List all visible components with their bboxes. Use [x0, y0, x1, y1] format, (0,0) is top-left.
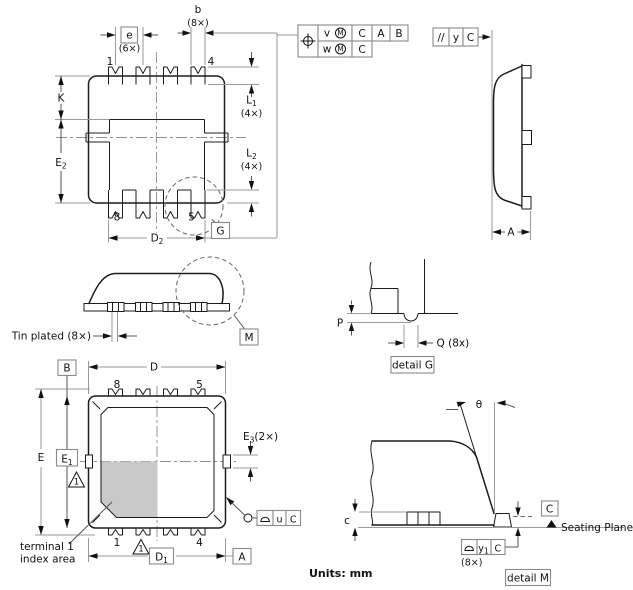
u-frame-tolerance: u: [276, 515, 282, 526]
detail-m-title: detail M: [507, 573, 549, 585]
pin-number-4: 4: [196, 537, 203, 549]
k-dim-label: K: [58, 93, 66, 105]
note-triangle-left-label: 1: [74, 478, 79, 488]
e-dim-label: e: [126, 30, 132, 42]
side-terminal-bottom: [522, 197, 531, 210]
e3-extension-lines: [233, 455, 258, 468]
u-frame-symbol-cell: [257, 511, 273, 526]
leader-balloon-icon: [244, 514, 252, 522]
side-view: A: [492, 30, 532, 240]
l2-dim-label: L2: [246, 148, 257, 162]
b-dim-count: (8×): [187, 18, 208, 29]
y1-frame-count: (8×): [461, 558, 482, 569]
c-dim-label: c: [344, 515, 350, 527]
row1-tolerance: v: [324, 28, 330, 40]
terminal1-index-label-line2: index area: [20, 554, 75, 566]
y1-frame-datum: C: [494, 544, 501, 555]
tin-plated-label: Tin plated (8×): [11, 331, 91, 343]
detail-m-terminals: [407, 512, 440, 525]
row2-datum1: C: [358, 44, 365, 56]
y1-frame-symbol-cell: [462, 540, 478, 555]
left-side-tab: [86, 455, 93, 468]
bottom-view: D B E E1 1 E3(2×) u C: [20, 360, 301, 566]
detail-g-title: detail G: [392, 360, 433, 372]
pin-number-1: 1: [114, 537, 121, 549]
tin-extension-lines: [112, 312, 118, 342]
theta-dim-label: θ: [476, 399, 482, 411]
row2-tolerance: w: [323, 44, 332, 56]
side-terminal-middle: [522, 131, 532, 145]
row1-datum1: C: [358, 28, 365, 40]
u-frame-datum: C: [290, 515, 297, 526]
front-view: Tin plated (8×) M: [11, 257, 258, 345]
seating-plane-triangle-icon: [547, 520, 557, 528]
pin-number-5: 5: [196, 379, 203, 391]
note-triangle-bottom-label: 1: [138, 545, 143, 555]
b-extension-lines: [191, 27, 277, 65]
front-body: [89, 274, 223, 304]
terminal1-index-label-line1: terminal 1: [20, 541, 74, 553]
d-dim-label: D: [150, 362, 158, 374]
pin-number-8: 8: [114, 379, 121, 391]
row1-datum2: A: [377, 28, 385, 40]
e-dim-label: E: [38, 452, 45, 464]
terminal1-index-area: [101, 462, 158, 518]
parallelism-datum: C: [467, 32, 474, 44]
detail-g-view: P Q (8x) detail G: [337, 259, 469, 373]
detail-g-extension-lines: [347, 314, 418, 349]
row1-modifier: M: [337, 29, 343, 38]
e2-dim-label: E2: [55, 157, 67, 171]
detail-m-view: θ c y1 C (8×) C Seating Plane detail M: [344, 399, 633, 586]
side-terminal-top: [522, 66, 531, 79]
theta-extension-line: [460, 402, 477, 457]
l1-dim-count: (4×): [241, 109, 262, 120]
d2-dim-label: D2: [151, 233, 164, 247]
parallelism-tolerance: y: [453, 32, 459, 44]
datum-b-label: B: [63, 363, 70, 375]
units-label: Units: mm: [309, 567, 373, 580]
e3-dim-label: E3(2×): [243, 431, 278, 445]
row2-modifier: M: [337, 45, 343, 54]
detail-m-ref-label: M: [244, 332, 253, 344]
p-dim-label: P: [337, 318, 343, 330]
pin-number-1: 1: [107, 56, 114, 68]
side-view-body: [494, 65, 523, 208]
l1-dim-label: L1: [246, 95, 257, 109]
datum-c-label: C: [546, 504, 553, 516]
seating-plane-label: Seating Plane: [561, 522, 633, 534]
q-dim-label: Q (8x): [437, 338, 470, 350]
drawing-canvas: e (6×) b (8×) K E2 L1 (4×) L2 (4×) D2: [0, 0, 633, 590]
detail-g-ref-label: G: [216, 226, 224, 238]
pin-number-5: 5: [188, 212, 195, 224]
detail-m-extension-lines: [358, 402, 624, 528]
pin-number-8: 8: [114, 212, 121, 224]
detail-m-circle: [176, 257, 244, 325]
l2-dim-count: (4×): [241, 162, 262, 173]
pin-number-4: 4: [208, 56, 215, 68]
parallelism-symbol-icon: //: [437, 32, 445, 44]
datum-a-label: A: [238, 552, 246, 564]
detail-g-linework: [370, 259, 458, 321]
top-view: e (6×) b (8×) K E2 L1 (4×) L2 (4×) D2: [55, 4, 298, 246]
position-tolerance-frame: v M C A B w M C: [298, 25, 408, 57]
a-dim-label: A: [507, 227, 515, 239]
b-dim-label: b: [195, 4, 202, 16]
right-side-tab: [223, 455, 231, 468]
row1-datum3: B: [395, 28, 402, 40]
e-dim-count: (6×): [119, 44, 140, 55]
front-base: [84, 304, 230, 312]
detail-m-end-terminal: [494, 514, 512, 528]
package-outline-drawing: e (6×) b (8×) K E2 L1 (4×) L2 (4×) D2: [0, 0, 633, 590]
parallelism-tolerance-frame: // y C: [433, 28, 491, 46]
